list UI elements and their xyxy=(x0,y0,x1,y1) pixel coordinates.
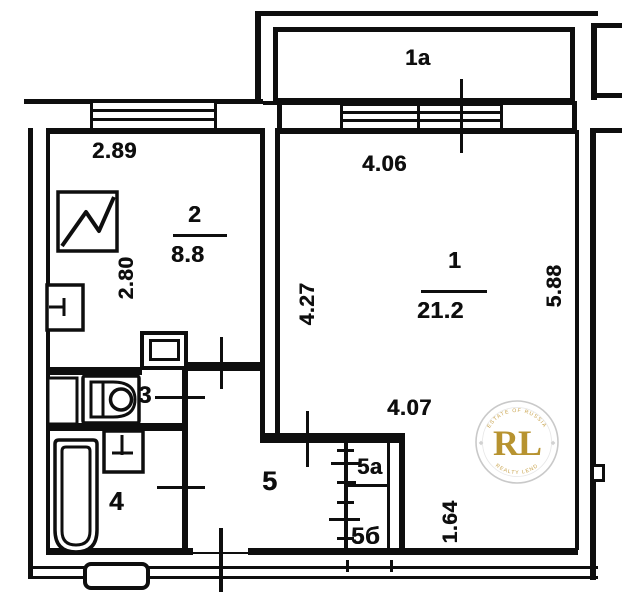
watermark-logo: ESTATE OF RUSSIA REALTY LEND RL ◆ ◆ xyxy=(472,397,562,487)
dimension-living-left: 4.27 xyxy=(296,276,322,332)
room-living-area: 21.2 xyxy=(417,297,464,324)
room-balcony-label: 1a xyxy=(405,45,430,71)
dimension-kitchen-left: 2.80 xyxy=(115,250,141,306)
dimension-living-bottom: 4.07 xyxy=(387,395,432,421)
dimension-living-top: 4.06 xyxy=(362,151,407,177)
dimension-ext-right: 1.64 xyxy=(439,494,465,550)
stove-icon xyxy=(58,192,117,251)
floor-plan: 2.89 2.80 2 8.8 1a 4.06 1 21.2 4.27 5.88… xyxy=(0,0,622,600)
room-wc-label: 3 xyxy=(138,382,152,410)
room-kitchen-fraction-line xyxy=(173,234,227,237)
room-closet-a-label: 5a xyxy=(357,454,382,480)
bathtub-icon xyxy=(55,440,97,552)
washing-machine-icon xyxy=(48,378,77,424)
watermark-initials: RL xyxy=(493,423,541,463)
dimension-kitchen-top: 2.89 xyxy=(92,138,137,164)
dimension-living-right: 5.88 xyxy=(543,258,569,314)
room-living-fraction-line xyxy=(421,290,487,293)
kitchen-sink-icon xyxy=(47,285,83,330)
watermark-diamond-left: ◆ xyxy=(479,441,484,447)
room-kitchen-area: 8.8 xyxy=(171,241,204,268)
room-living-number: 1 xyxy=(448,247,461,274)
room-kitchen-number: 2 xyxy=(188,201,201,228)
toilet-icon xyxy=(83,376,139,423)
room-closet-b-label: 5б xyxy=(351,523,380,551)
room-bath-label: 4 xyxy=(109,486,124,517)
bathroom-sink-icon xyxy=(104,431,143,472)
watermark-diamond-right: ◆ xyxy=(551,441,556,447)
room-hall-label: 5 xyxy=(262,466,278,497)
